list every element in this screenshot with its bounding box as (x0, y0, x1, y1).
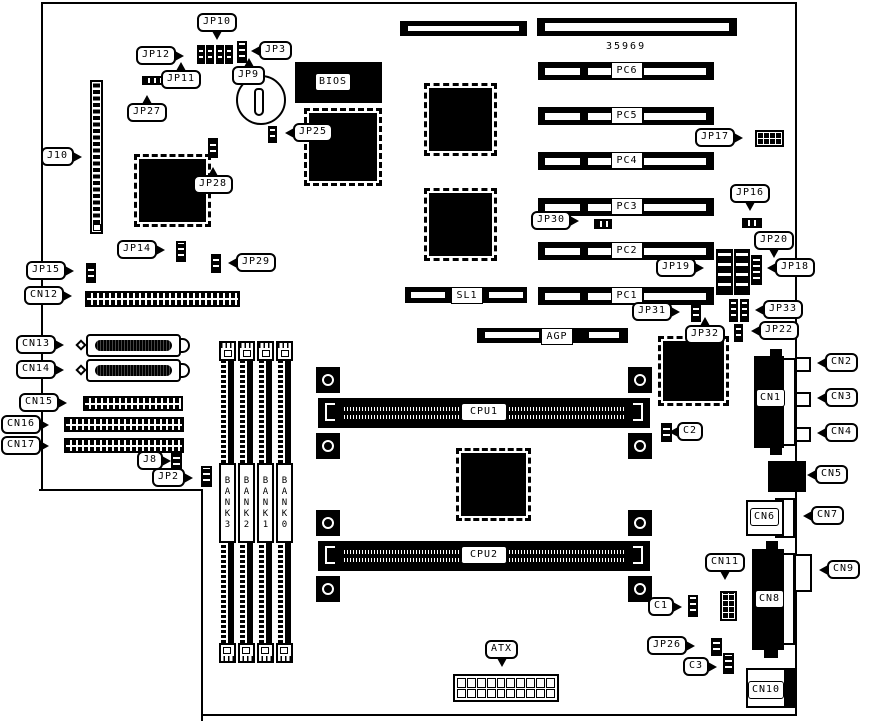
bank3-label: BANK3 (219, 463, 236, 543)
mounting-hole (316, 576, 340, 602)
atx-pin-cell (497, 678, 506, 688)
cn6-label: CN6 (750, 508, 779, 526)
callout-pointer (55, 365, 64, 375)
callout-jp15-text: JP15 (32, 264, 60, 275)
callout-pointer (686, 641, 695, 651)
connector-ear-right (181, 338, 190, 353)
jumper-c3 (723, 653, 734, 674)
callout-jp19-text: JP19 (662, 261, 690, 272)
callout-pointer (671, 307, 680, 317)
callout-c3: C3 (683, 657, 709, 676)
callout-jp18: JP18 (775, 258, 815, 277)
slot-sl1: SL1 (405, 287, 527, 303)
callout-cn14: CN14 (16, 360, 56, 379)
cn13-connector (76, 334, 192, 358)
callout-jp27: JP27 (127, 103, 167, 122)
callout-pointer (40, 420, 49, 430)
callout-cn5-text: CN5 (821, 468, 842, 479)
callout-cn16-text: CN16 (7, 418, 35, 429)
callout-jp3: JP3 (259, 41, 292, 60)
callout-jp10: JP10 (197, 13, 237, 32)
mounting-hole (628, 510, 652, 536)
slot-label-sl1: SL1 (451, 287, 483, 304)
callout-pointer (63, 291, 72, 301)
cpu1-slot: CPU1 (316, 367, 652, 459)
atx-pin-cell (546, 689, 555, 699)
jumper-jp25 (268, 126, 277, 143)
callout-jp32: JP32 (685, 325, 725, 344)
callout-pointer (176, 62, 186, 71)
callout-jp9-text: JP9 (238, 69, 259, 80)
slot-label-pc2: PC2 (611, 242, 643, 259)
callout-jp14-text: JP14 (123, 243, 151, 254)
callout-jp2-text: JP2 (158, 471, 179, 482)
callout-jp20: JP20 (754, 231, 794, 250)
callout-jp19: JP19 (656, 258, 696, 277)
slot-bracket (633, 546, 643, 564)
callout-cn7: CN7 (811, 506, 844, 525)
callout-pointer (803, 511, 812, 521)
callout-pointer (497, 658, 507, 667)
cn3-port (795, 392, 811, 407)
callout-jp10-text: JP10 (203, 16, 231, 27)
callout-cn14-text: CN14 (22, 363, 50, 374)
slot-label-pc6: PC6 (611, 62, 643, 79)
jumper-jp22 (734, 324, 743, 342)
callout-cn11-text: CN11 (711, 556, 739, 567)
jumper-block-jp17 (755, 130, 784, 147)
motherboard-diagram: 35969 PC6 PC5 PC4 PC3 PC2 PC1 SL1 AGP BI… (0, 0, 869, 721)
callout-c2: C2 (677, 422, 703, 441)
jumper-jp29 (211, 254, 221, 273)
qfp-chip-3 (429, 88, 492, 151)
jumper-jp33-right (740, 299, 749, 322)
cpu2-label: CPU2 (461, 546, 507, 564)
callout-cn9: CN9 (827, 560, 860, 579)
atx-pin-cell (467, 689, 476, 699)
cn12-connector (85, 291, 240, 307)
callout-jp26-text: JP26 (653, 639, 681, 650)
slot-label-agp: AGP (541, 328, 573, 345)
socket-cap (219, 643, 236, 663)
callout-pointer (817, 428, 826, 438)
callout-jp32-text: JP32 (691, 328, 719, 339)
socket-cap (257, 341, 274, 361)
cn10-side (784, 668, 795, 708)
callout-pointer (669, 427, 678, 437)
connector-body (86, 359, 181, 382)
cn15-connector (83, 396, 183, 411)
jumper-c1 (688, 595, 698, 617)
socket-pins (259, 543, 272, 643)
top-edge-connector-2 (537, 18, 737, 36)
callout-pointer (745, 202, 755, 211)
callout-pointer (55, 340, 64, 350)
callout-pointer (175, 51, 184, 61)
callout-atx: ATX (485, 640, 518, 659)
callout-cn12-text: CN12 (30, 289, 58, 300)
atx-pin-cell (516, 689, 525, 699)
cpu1-label: CPU1 (461, 403, 507, 421)
callout-pointer (570, 216, 579, 226)
callout-j10: J10 (41, 147, 74, 166)
callout-pointer (285, 128, 294, 138)
header-jp19-right (734, 249, 750, 295)
atx-pin-cell (477, 678, 486, 688)
mounting-hole (628, 576, 652, 602)
callout-cn2: CN2 (825, 353, 858, 372)
callout-c1-text: C1 (654, 600, 668, 611)
board-corner-notch (39, 489, 203, 721)
callout-pointer (142, 95, 152, 104)
callout-cn17-text: CN17 (7, 439, 35, 450)
socket-pins (259, 361, 272, 463)
jumper-row-pin-4 (225, 45, 233, 64)
callout-jp25-text: JP25 (299, 126, 327, 137)
callout-cn17: CN17 (1, 436, 41, 455)
qfp-chip-5 (461, 453, 526, 516)
dimm-socket-bank3: BANK3 (219, 341, 236, 663)
socket-cap (219, 341, 236, 361)
cn5-port (768, 461, 806, 492)
callout-cn3-text: CN3 (831, 391, 852, 402)
socket-cap (257, 643, 274, 663)
jumper-row-pin-3 (216, 45, 224, 64)
jumper-jp2 (201, 466, 212, 487)
atx-power-connector (453, 674, 559, 702)
cn16-connector (64, 417, 184, 432)
board-part-number: 35969 (606, 41, 646, 52)
cn2-port (795, 357, 811, 372)
dimm-socket-bank2: BANK2 (238, 341, 255, 663)
jumper-jp15 (86, 263, 96, 283)
cn10-label: CN10 (748, 681, 784, 699)
callout-jp31-text: JP31 (638, 305, 666, 316)
callout-jp33: JP33 (763, 300, 803, 319)
atx-pin-cell (487, 678, 496, 688)
callout-pointer (767, 263, 776, 273)
atx-pin-cell (457, 678, 466, 688)
atx-pin-cell (526, 678, 535, 688)
callout-jp18-text: JP18 (781, 261, 809, 272)
callout-cn13: CN13 (16, 335, 56, 354)
callout-cn5: CN5 (815, 465, 848, 484)
callout-cn4: CN4 (825, 423, 858, 442)
bank2-label: BANK2 (238, 463, 255, 543)
callout-pointer (695, 263, 704, 273)
slot-label-pc4: PC4 (611, 152, 643, 169)
battery-cell (254, 88, 264, 116)
callout-pointer (700, 317, 710, 326)
qfp-chip-4 (429, 193, 492, 256)
slot-label-pc5: PC5 (611, 107, 643, 124)
cpu1-slot-connector: CPU1 (318, 398, 650, 428)
callout-jp28-text: JP28 (199, 178, 227, 189)
bank0-label: BANK0 (276, 463, 293, 543)
mounting-hole (628, 367, 652, 393)
callout-cn11: CN11 (705, 553, 745, 572)
atx-pin-cell (536, 678, 545, 688)
jumper-jp26 (711, 638, 722, 656)
cn9-port (794, 554, 812, 592)
socket-cap (276, 643, 293, 663)
callout-pointer (769, 249, 779, 258)
callout-jp12-text: JP12 (142, 49, 170, 60)
cpu1-label-text: CPU1 (470, 406, 498, 417)
cn6-label-text: CN6 (754, 511, 775, 522)
callout-pointer (673, 602, 682, 612)
callout-jp25: JP25 (293, 123, 333, 142)
socket-pins (240, 361, 253, 463)
callout-jp22: JP22 (759, 321, 799, 340)
bank3-label-text: BANK3 (223, 476, 233, 531)
callout-cn13-text: CN13 (22, 338, 50, 349)
callout-jp26: JP26 (647, 636, 687, 655)
callout-pointer (156, 245, 165, 255)
callout-j10-text: J10 (47, 150, 68, 161)
bios-label-text: BIOS (319, 76, 347, 87)
callout-jp30-text: JP30 (537, 214, 565, 225)
socket-pins (221, 543, 234, 643)
callout-pointer (162, 456, 171, 466)
slot-bracket (325, 546, 335, 564)
callout-atx-text: ATX (491, 643, 512, 654)
atx-pin-cell (546, 678, 555, 688)
callout-pointer (228, 258, 237, 268)
jumper-row-pin-2 (206, 45, 214, 64)
cn8-label: CN8 (755, 590, 784, 608)
callout-jp9: JP9 (232, 66, 265, 85)
callout-jp20-text: JP20 (760, 234, 788, 245)
jumper-jp28 (208, 138, 218, 158)
callout-c3-text: C3 (689, 660, 703, 671)
callout-cn12: CN12 (24, 286, 64, 305)
callout-jp28: JP28 (193, 175, 233, 194)
callout-pointer (819, 565, 828, 575)
dimm-socket-bank1: BANK1 (257, 341, 274, 663)
callout-jp27-text: JP27 (133, 106, 161, 117)
header-jp18 (751, 255, 762, 285)
header-jp19-left (716, 249, 733, 295)
callout-jp3-text: JP3 (265, 44, 286, 55)
j10-connector (90, 80, 103, 234)
callout-pointer (734, 133, 743, 143)
callout-jp29-text: JP29 (242, 256, 270, 267)
callout-jp17: JP17 (695, 128, 735, 147)
callout-jp14: JP14 (117, 240, 157, 259)
bank1-label-text: BANK1 (261, 476, 271, 531)
callout-cn15-text: CN15 (25, 396, 53, 407)
callout-jp33-text: JP33 (769, 303, 797, 314)
mounting-hole (316, 367, 340, 393)
callout-j8-text: J8 (143, 454, 157, 465)
bios-label: BIOS (315, 73, 351, 91)
callout-pointer (817, 358, 826, 368)
atx-pin-cell (516, 678, 525, 688)
callout-pointer (807, 470, 816, 480)
callout-pointer (817, 393, 826, 403)
callout-cn2-text: CN2 (831, 356, 852, 367)
connector-body (86, 334, 181, 357)
callout-jp2: JP2 (152, 468, 185, 487)
slot-bracket (325, 403, 335, 421)
atx-pin-cell (487, 689, 496, 699)
cn8-foot-top (766, 541, 778, 549)
slot-bracket (633, 403, 643, 421)
socket-pins (278, 361, 291, 463)
socket-pins (278, 543, 291, 643)
atx-pin-cell (477, 689, 486, 699)
socket-cap (276, 341, 293, 361)
cn4-port (795, 427, 811, 442)
connector-ear-left (75, 339, 86, 350)
cn8-label-text: CN8 (759, 593, 780, 604)
callout-pointer (720, 571, 730, 580)
callout-cn3: CN3 (825, 388, 858, 407)
mounting-hole (316, 510, 340, 536)
bank0-label-text: BANK0 (280, 476, 290, 531)
atx-pin-cell (526, 689, 535, 699)
cn8-foot-bottom (764, 650, 778, 658)
pci-slot-pc5: PC5 (538, 107, 714, 125)
cpu2-slot-connector: CPU2 (318, 541, 650, 571)
callout-jp22-text: JP22 (765, 324, 793, 335)
callout-jp17-text: JP17 (701, 131, 729, 142)
jumper-jp32-jp33-left (729, 299, 738, 322)
callout-pointer (755, 305, 764, 315)
callout-jp16: JP16 (730, 184, 770, 203)
agp-slot: AGP (477, 328, 628, 343)
atx-pin-cell (506, 678, 515, 688)
socket-cap (238, 643, 255, 663)
callout-cn4-text: CN4 (831, 426, 852, 437)
cn14-connector (76, 359, 192, 383)
pci-slot-pc1: PC1 (538, 287, 714, 305)
jumper-jp30 (594, 219, 612, 229)
mounting-hole (316, 433, 340, 459)
callout-cn9-text: CN9 (833, 563, 854, 574)
atx-pin-cell (536, 689, 545, 699)
callout-jp31: JP31 (632, 302, 672, 321)
mounting-hole (628, 433, 652, 459)
connector-ear-right (181, 363, 190, 378)
socket-pins (240, 543, 253, 643)
jumper-jp14 (176, 241, 186, 262)
pci-slot-pc6: PC6 (538, 62, 714, 80)
callout-jp15: JP15 (26, 261, 66, 280)
callout-jp11-text: JP11 (167, 73, 195, 84)
cn1-foot-bottom (770, 447, 782, 455)
cpu2-label-text: CPU2 (470, 549, 498, 560)
callout-pointer (244, 58, 254, 67)
callout-pointer (208, 167, 218, 176)
top-edge-connector-1 (400, 21, 527, 36)
callout-jp29: JP29 (236, 253, 276, 272)
cn10-label-text: CN10 (752, 684, 780, 695)
callout-jp11: JP11 (161, 70, 201, 89)
socket-pins (221, 361, 234, 463)
bank1-label: BANK1 (257, 463, 274, 543)
callout-pointer (708, 662, 717, 672)
callout-c1: C1 (648, 597, 674, 616)
callout-pointer (251, 46, 260, 56)
callout-pointer (212, 31, 222, 40)
cn1-label: CN1 (756, 389, 785, 407)
callout-cn15: CN15 (19, 393, 59, 412)
callout-cn7-text: CN7 (817, 509, 838, 520)
connector-ear-left (75, 364, 86, 375)
callout-pointer (40, 441, 49, 451)
callout-pointer (65, 266, 74, 276)
socket-cap (238, 341, 255, 361)
jumper-row-pin-1 (197, 45, 205, 64)
callout-c2-text: C2 (683, 425, 697, 436)
callout-pointer (58, 398, 67, 408)
jumper-jp16 (742, 218, 762, 228)
bank2-label-text: BANK2 (242, 476, 252, 531)
callout-jp12: JP12 (136, 46, 176, 65)
callout-pointer (751, 326, 760, 336)
cn17-connector (64, 438, 184, 453)
atx-pin-cell (497, 689, 506, 699)
header-cn11 (720, 591, 737, 621)
atx-pin-cell (506, 689, 515, 699)
pci-slot-pc4: PC4 (538, 152, 714, 170)
cn1-label-text: CN1 (760, 392, 781, 403)
qfp-chip-6 (663, 341, 724, 401)
callout-cn16: CN16 (1, 415, 41, 434)
callout-jp16-text: JP16 (736, 187, 764, 198)
cpu2-slot: CPU2 (316, 510, 652, 602)
atx-pin-cell (457, 689, 466, 699)
callout-pointer (184, 473, 193, 483)
atx-pin-cell (467, 678, 476, 688)
callout-jp30: JP30 (531, 211, 571, 230)
dimm-socket-bank0: BANK0 (276, 341, 293, 663)
callout-pointer (73, 152, 82, 162)
slot-label-pc3: PC3 (611, 198, 643, 215)
